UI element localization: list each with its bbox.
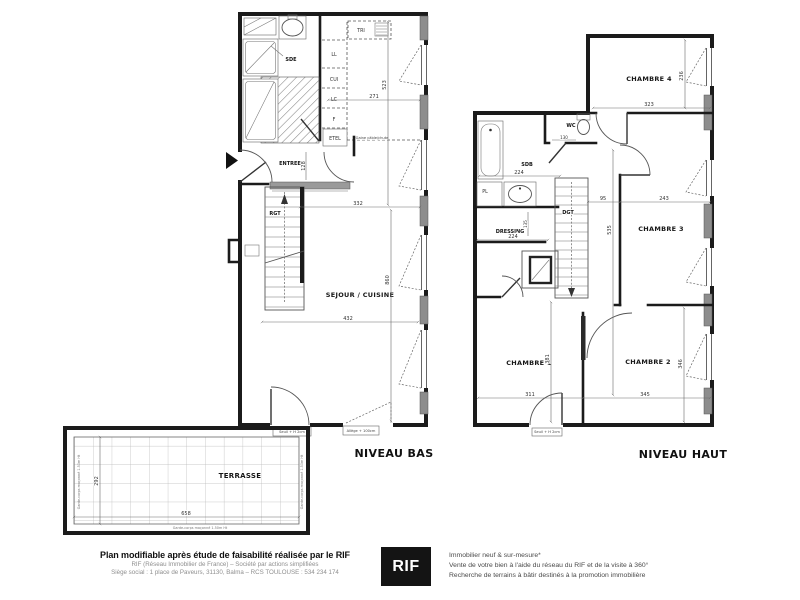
dim-345: 345: [640, 392, 650, 398]
bas-terrasse: TERRASSE 658 292 Garde-corps maçonné 1.5…: [65, 428, 308, 533]
dim-346: 346: [678, 359, 684, 369]
room-label-ch3: CHAMBRE 3: [638, 225, 684, 233]
unit-label-ll: LL: [331, 52, 337, 58]
floor-plan-canvas: SDE TRI LL CUI LC F ETEL Gaine câble/chu…: [0, 0, 800, 542]
unit-label-tri: TRI: [356, 28, 365, 34]
bas-sde-room: SDE: [243, 14, 320, 143]
stair-up-arrow-icon: [281, 194, 288, 204]
unit-label-cui: CUI: [330, 77, 338, 83]
dim-224a: 224: [514, 170, 524, 176]
room-label-sdb: SDB: [521, 162, 533, 168]
level-label-haut: NIVEAU HAUT: [639, 448, 728, 461]
dim-381: 381: [545, 354, 551, 364]
unit-label-etel: ETEL: [329, 136, 341, 142]
note-allege-bas: Allège + 100cm: [347, 429, 376, 433]
dim-271: 271: [369, 94, 379, 100]
bas-window-gap-3: [421, 235, 431, 290]
staircase: [265, 187, 304, 310]
note-garde-left: Garde-corps maçonné 1.50m Ht: [77, 454, 81, 509]
dim-332: 332: [353, 201, 363, 207]
dim-130: 130: [560, 135, 568, 140]
footer-address-line: Siège social : 1 place de Paveurs, 31130…: [68, 569, 382, 577]
note-garde-right: Garde-corps maçonné 1.50m Ht: [300, 454, 304, 509]
bas-window-gap-1: [421, 45, 431, 85]
footer-right-block: Immobilier neuf & sur-mesure* Vente de v…: [449, 551, 648, 580]
dim-432: 432: [343, 316, 353, 322]
stair-down-arrow-icon: [568, 288, 575, 297]
toilet: [578, 120, 590, 135]
room-label-ch4: CHAMBRE 4: [626, 75, 672, 83]
note-garde-bottom: Garde-corps maçonné 1.50m Ht: [173, 526, 228, 530]
footer-title: Plan modifiable après étude de faisabili…: [68, 550, 382, 561]
footer-service-line-3: Recherche de terrains à bâtir destinés à…: [449, 571, 648, 581]
floorplan-page: SDE TRI LL CUI LC F ETEL Gaine câble/chu…: [0, 0, 800, 600]
footer-service-line-1: Immobilier neuf & sur-mesure*: [449, 551, 648, 561]
dim-860: 860: [385, 275, 391, 285]
dim-243: 243: [659, 196, 669, 202]
counter-bar: [270, 182, 350, 189]
footer-left-block: Plan modifiable après étude de faisabili…: [68, 550, 382, 576]
pl-closet: [477, 182, 502, 206]
dim-236: 236: [679, 71, 685, 81]
room-label-ch2: CHAMBRE 2: [625, 358, 671, 366]
dim-95: 95: [600, 196, 606, 202]
level-label-bas: NIVEAU BAS: [354, 447, 433, 460]
dim-135: 135: [523, 220, 528, 228]
bas-kitchen-strip: TRI LL CUI LC F ETEL Gaine câble/chute: [322, 21, 420, 146]
bath-fixture: [243, 79, 278, 142]
haut-interior-walls: [475, 113, 712, 425]
dim-323: 323: [644, 102, 654, 108]
room-label-sejour: SEJOUR / CUISINE: [326, 291, 395, 299]
room-label-pl: PL: [482, 189, 488, 195]
niche-box: [245, 245, 259, 256]
room-label-dgt: DGT: [562, 210, 574, 216]
room-label-terrasse: TERRASSE: [219, 472, 262, 480]
unit-label-f: F: [333, 117, 336, 123]
room-label-rgt: RGT: [269, 211, 281, 217]
dim-535: 535: [607, 225, 613, 235]
note-seuil-bas: Seuil + H 2cm: [279, 430, 305, 434]
footer-company-line: RIF (Réseau Immobilier de France) – Soci…: [68, 561, 382, 569]
plan-niveau-haut: PL WC SDB DRESSING DGT CHAMBRE 4 CHAMBRE…: [475, 36, 727, 461]
footer: Plan modifiable après étude de faisabili…: [0, 542, 800, 600]
entrance-door-leaf: [240, 162, 266, 182]
haut-bottom-door: Seuil + H 2cm: [530, 393, 562, 436]
haut-dressing: DRESSING: [496, 229, 558, 288]
room-label-entree: ENTREE: [279, 161, 301, 167]
dim-311: 311: [525, 392, 535, 398]
dim-292: 292: [94, 476, 100, 486]
ch2-door-leaf: [581, 316, 586, 360]
stair-wall: [300, 187, 304, 283]
dim-523: 523: [382, 80, 388, 90]
bas-window-gap-2: [421, 140, 431, 190]
room-label-sde: SDE: [285, 57, 297, 63]
wc-door-leaf: [549, 143, 566, 163]
ch1-door-leaf: [502, 278, 520, 297]
haut-sdb: PL WC SDB: [477, 114, 590, 206]
note-gaine: Gaine câble/chute: [356, 136, 389, 140]
plan-niveau-bas: SDE TRI LL CUI LC F ETEL Gaine câble/chu…: [65, 14, 434, 533]
note-seuil-haut: Seuil + H 2cm: [534, 430, 560, 434]
room-label-wc: WC: [566, 123, 576, 129]
footer-service-line-2: Vente de votre bien à l'aide du réseau d…: [449, 561, 648, 571]
dim-128: 128: [301, 161, 307, 171]
dim-224b: 224: [508, 234, 518, 240]
bas-window-gap-4: [421, 330, 431, 388]
dim-658: 658: [181, 511, 191, 517]
haut-stairs: DGT: [555, 178, 588, 298]
rif-logo: RIF: [381, 547, 431, 586]
entrance-arrow-icon: [226, 152, 238, 169]
